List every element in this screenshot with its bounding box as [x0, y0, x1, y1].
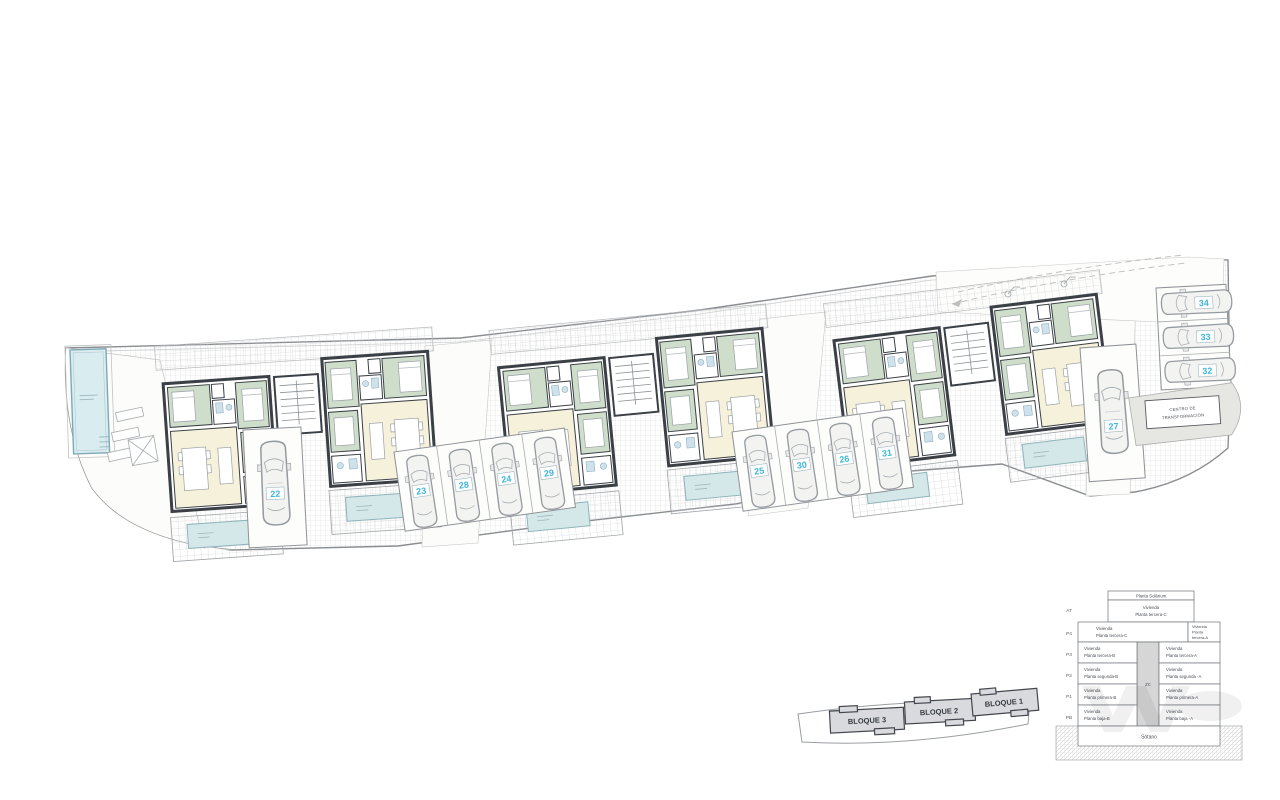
site-plan-page: 22 23 28 24 29 25 30 26 31 — [0, 0, 1280, 800]
parking-number: 31 — [881, 447, 892, 458]
legend-axis-at: AT — [1066, 608, 1072, 614]
section-legend: AT P4 P3 P2 P1 PB Planta Solárium Vivien… — [1056, 591, 1242, 760]
parking-space-22: 22 — [243, 427, 307, 548]
parking-number: 32 — [1202, 366, 1213, 377]
legend-p3-left-line1: Vivienda — [1084, 646, 1101, 651]
legend-at-line2: Planta tercera-C — [1135, 612, 1166, 617]
legend-axis-p1: P1 — [1066, 694, 1072, 700]
parking-column-32-34: 34 33 32 — [1156, 284, 1236, 390]
legend-axis-pb: PB — [1066, 715, 1072, 721]
legend-p4-left-box — [1078, 622, 1188, 642]
legend-axis-p2: P2 — [1066, 673, 1072, 679]
parking-number: 28 — [458, 479, 469, 490]
parking-number: 29 — [543, 467, 554, 478]
legend-at-box — [1108, 600, 1194, 622]
legend-p4-left-line2: Planta tercera-C — [1096, 633, 1127, 638]
legend-p3-right-line2: Planta tercera-A — [1166, 653, 1197, 658]
block3-pool-b — [187, 520, 251, 548]
block1-stair-core — [944, 323, 995, 386]
legend-p2-right-line2: Planta segunda -A — [1166, 674, 1201, 679]
legend-p2-left-line1: Vivienda — [1084, 667, 1101, 672]
legend-axis-p3: P3 — [1066, 652, 1072, 658]
legend-solarium-label: Planta Solárium — [1136, 594, 1167, 599]
legend-p2-left-line2: Planta segunda-B — [1084, 674, 1118, 679]
parking-number: 30 — [796, 459, 807, 470]
legend-p2-right-line1: Vivienda — [1166, 667, 1183, 672]
parking-number: 26 — [839, 453, 850, 464]
site-plan-drawing: 22 23 28 24 29 25 30 26 31 — [0, 0, 1280, 800]
parking-number: 23 — [416, 485, 427, 496]
block2-stair-core — [609, 354, 658, 416]
legend-p4-left-line1: Vivienda — [1096, 626, 1113, 631]
parking-number: 34 — [1199, 298, 1210, 309]
legend-p3-right-line1: Vivienda — [1166, 646, 1183, 651]
parking-number: 22 — [270, 489, 281, 500]
key-plan: BLOQUE 3 BLOQUE 2 BLOQUE 1 — [798, 684, 1039, 743]
parking-number: 33 — [1200, 332, 1211, 343]
legend-basement-label: Sótano — [1141, 735, 1157, 741]
parking-number: 25 — [754, 465, 765, 476]
parking-number: 24 — [501, 473, 512, 484]
legend-axis-p4: P4 — [1066, 631, 1072, 637]
legend-p4-right-line1: Vivienda — [1192, 624, 1208, 629]
block3-pool-a — [345, 493, 409, 521]
legend-p3-left-line2: Planta tercera-B — [1084, 653, 1115, 658]
parking-number: 27 — [1108, 421, 1119, 432]
legend-p4-right-line2: Planta — [1192, 630, 1204, 635]
parasol-icon — [128, 435, 158, 465]
block3-stair-core — [274, 374, 322, 435]
legend-p4-right-line3: tercera-A — [1192, 635, 1208, 640]
legend-at-line1: Vivienda — [1143, 605, 1160, 610]
